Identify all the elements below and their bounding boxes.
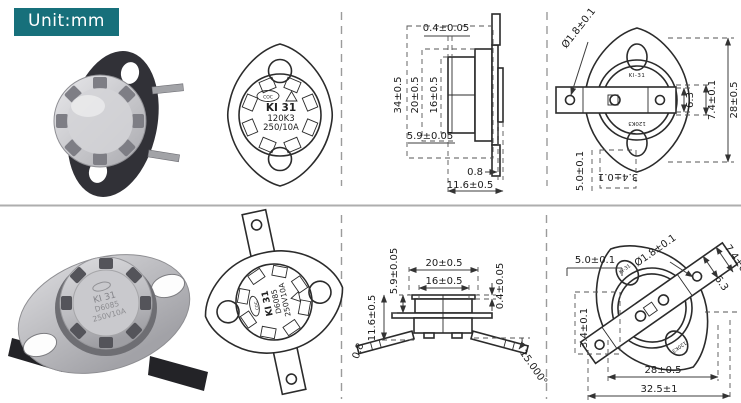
side-housing <box>475 49 492 141</box>
bside-cap <box>415 299 472 313</box>
dim2-cap-width: 16±0.5 <box>425 276 462 287</box>
front-model-text: KI 31 <box>266 102 296 114</box>
front-rating-text: 250/10A <box>263 123 299 133</box>
dim-plate: 0.8 <box>467 167 483 178</box>
dim2-cap-disc: 0.4±0.05 <box>495 263 506 310</box>
technical-sheet: COC KI 31 120K3 250/10A 0.4±0.05 34±0.5 … <box>0 0 741 403</box>
dim-term-width: 6.3 <box>685 92 696 108</box>
bside-lead-right <box>471 331 528 353</box>
bside-lead-left <box>357 331 414 353</box>
dim2-depth: 11.6±0.5 <box>367 295 378 342</box>
dim-ear: 5.0±0.1 <box>575 151 586 191</box>
dim2-step: 5.9±0.05 <box>389 248 400 295</box>
dim-hole-dia: Ø1.8±0.1 <box>559 6 598 51</box>
rear-stamp-model: KI-31 <box>629 73 646 79</box>
dim-term-height: 7.4±0.1 <box>707 80 718 120</box>
dim3-hole-span: 28±0.5 <box>644 365 681 376</box>
dim3-ear: 5.0±0.1 <box>575 255 615 266</box>
dim-ear-width: 3.4±0.1 <box>598 171 638 182</box>
photo2-terminal-right <box>148 356 208 391</box>
drawing-rotated-front-view: COC KI 31 D6085 250V10A <box>186 197 361 403</box>
side-plate-lip <box>498 68 503 122</box>
front-logo-text: COC <box>263 94 273 100</box>
dim2-lead-angle: 15.000° <box>517 348 549 387</box>
dim-depth: 11.6±0.5 <box>447 180 494 191</box>
drawing-bottom-side-view: 20±0.5 16±0.5 5.9±0.05 11.6±0.5 0.4±0.05… <box>351 248 549 387</box>
drawing-front-view: COC KI 31 120K3 250/10A <box>228 44 333 186</box>
dim-cap-disc: 0.4±0.05 <box>423 23 470 34</box>
page-canvas: COC KI 31 120K3 250/10A 0.4±0.05 34±0.5 … <box>0 0 741 403</box>
rear-stamp-code: 120K3 <box>628 120 646 126</box>
product-photo-side <box>54 42 184 205</box>
product-photo-top: KI 31 D6085 250V10A <box>3 235 208 394</box>
unit-label: Unit:mm <box>28 11 105 31</box>
dim-total-height: 34±0.5 <box>393 76 404 113</box>
dim2-body-width: 20±0.5 <box>425 258 462 269</box>
dim3-ear-width: 3.4±0.1 <box>579 308 590 348</box>
drawing-bottom-rear-view: KI-31 120K3 5.0±0.1 3.4±0.1 Ø1.8±0.1 6.3… <box>547 195 741 403</box>
dim-step: 5.9±0.05 <box>407 131 454 142</box>
dim3-flange-length: 32.5±1 <box>640 384 677 395</box>
dim-body-height: 20±0.5 <box>410 76 421 113</box>
photo-cap-highlight <box>71 95 105 117</box>
unit-badge: Unit:mm <box>14 8 119 36</box>
drawing-top-rear-view: KI-31 120K3 Ø1.8±0.1 6.3 7.4±0.1 28±0.5 … <box>556 6 740 192</box>
photo-terminal-bottom <box>148 150 180 162</box>
dim-flange-length: 28±0.5 <box>729 81 740 118</box>
drawing-top-side-view: 0.4±0.05 34±0.5 20±0.5 16±0.5 5.9±0.05 0… <box>393 14 503 196</box>
dim-cap-height: 16±0.5 <box>429 76 440 113</box>
photo-terminal-top <box>152 84 184 94</box>
